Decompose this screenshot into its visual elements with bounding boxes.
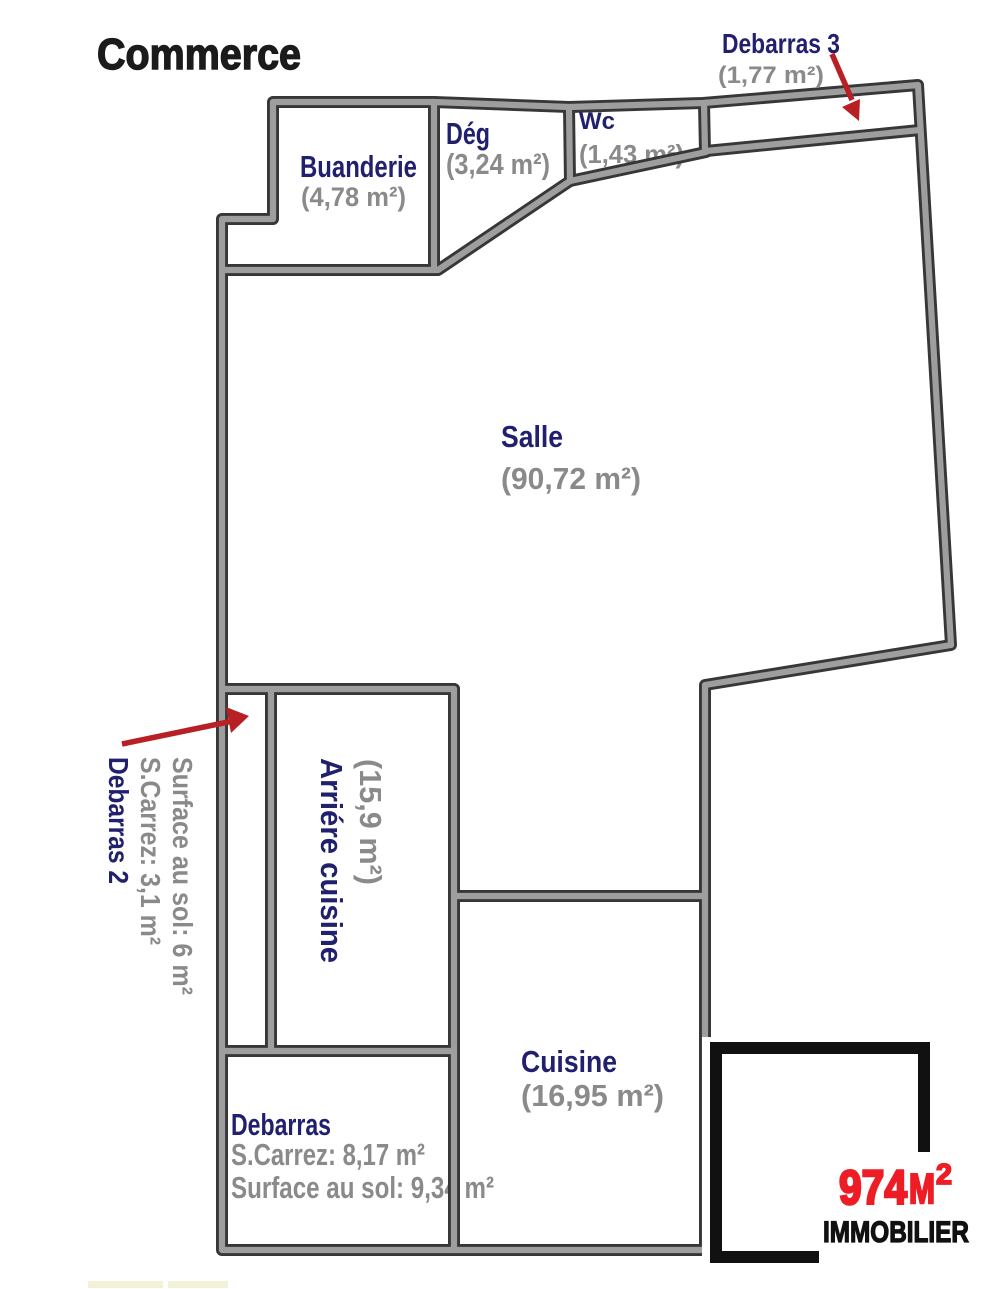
svg-text:IMMOBILIER: IMMOBILIER [823,1216,969,1249]
svg-text:(90,72 m²): (90,72 m²) [501,461,641,496]
svg-text:Buanderie: Buanderie [300,149,417,184]
svg-text:S.Carrez: 8,17 m²: S.Carrez: 8,17 m² [231,1137,425,1172]
svg-text:Wc: Wc [579,108,615,135]
svg-text:(3,24 m²): (3,24 m²) [446,149,550,181]
svg-text:Cuisine: Cuisine [521,1044,617,1079]
svg-text:Debarras 3: Debarras 3 [722,28,840,59]
svg-text:974: 974 [839,1162,907,1215]
svg-text:(16,95 m²): (16,95 m²) [521,1078,664,1113]
svg-text:S.Carrez: 3,1 m²: S.Carrez: 3,1 m² [135,757,166,945]
svg-text:2: 2 [936,1159,952,1191]
svg-text:(4,78 m²): (4,78 m²) [301,182,406,212]
svg-text:Arriére cuisine: Arriére cuisine [314,758,349,963]
svg-text:Salle: Salle [501,419,563,454]
svg-text:M: M [909,1165,935,1212]
svg-text:(15,9 m²): (15,9 m²) [353,759,388,885]
svg-text:Debarras 2: Debarras 2 [103,757,134,884]
svg-text:Dég: Dég [446,116,490,151]
svg-text:Surface au sol: 6 m²: Surface au sol: 6 m² [167,757,198,995]
svg-text:Commerce: Commerce [97,30,301,79]
svg-text:(1,77 m²): (1,77 m²) [718,62,824,89]
